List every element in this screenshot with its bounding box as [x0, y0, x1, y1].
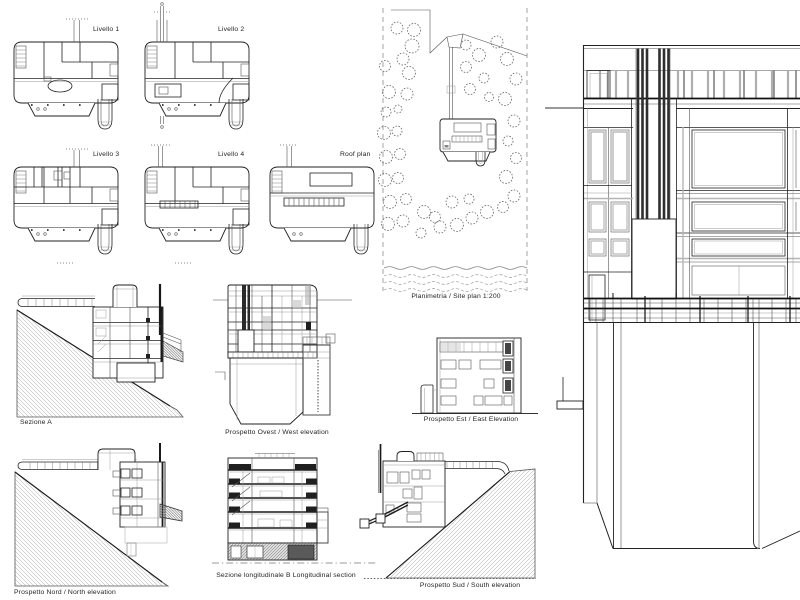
label-west-elevation: Prospetto Ovest / West elevation: [225, 429, 329, 436]
detail-floor-bands: [583, 191, 800, 263]
roof-railing-posts: [600, 71, 788, 99]
section-a: [17, 284, 183, 417]
label-roof-plan: Roof plan: [340, 151, 371, 158]
longitudinal-section: [212, 454, 377, 564]
plan-livello-2: [145, 3, 249, 129]
west-elevation: [213, 285, 352, 424]
plan-livello-4: [145, 145, 249, 263]
detail-walkway-band: [583, 293, 800, 323]
drawing-canvas: Livello 1 Livello 2 Livello 3 Livello 4 …: [0, 0, 800, 600]
label-east-elevation: Prospetto Est / East Elevation: [424, 416, 518, 423]
label-site-plan: Planimetria / Site plan 1:200: [411, 293, 500, 300]
plan-livello-1: [14, 19, 118, 129]
north-elevation: [15, 443, 182, 586]
label-south-elevation: Prospetto Sud / South elevation: [420, 582, 520, 589]
plan-livello-3: [14, 149, 118, 263]
site-plan: [378, 8, 528, 291]
label-sezione-a: Sezione A: [20, 419, 52, 426]
label-livello-1: Livello 1: [93, 26, 119, 33]
east-elevation: [412, 338, 538, 414]
label-longitudinal-section: Sezione longitudinale B Longitudinal sec…: [216, 572, 356, 579]
site-water-lines: [384, 267, 527, 292]
south-elevation: [360, 444, 536, 579]
architectural-sheet: Livello 1 Livello 2 Livello 3 Livello 4 …: [0, 0, 800, 600]
detail-podium: [584, 46, 800, 549]
label-livello-3: Livello 3: [93, 151, 119, 158]
detail-elevation: [545, 46, 800, 549]
label-livello-2: Livello 2: [218, 26, 244, 33]
plan-roof: [270, 145, 374, 254]
site-building-footprint: [440, 119, 496, 166]
detail-left-windows: [583, 99, 632, 321]
label-livello-4: Livello 4: [218, 151, 244, 158]
label-north-elevation: Prospetto Nord / North elevation: [14, 589, 116, 596]
